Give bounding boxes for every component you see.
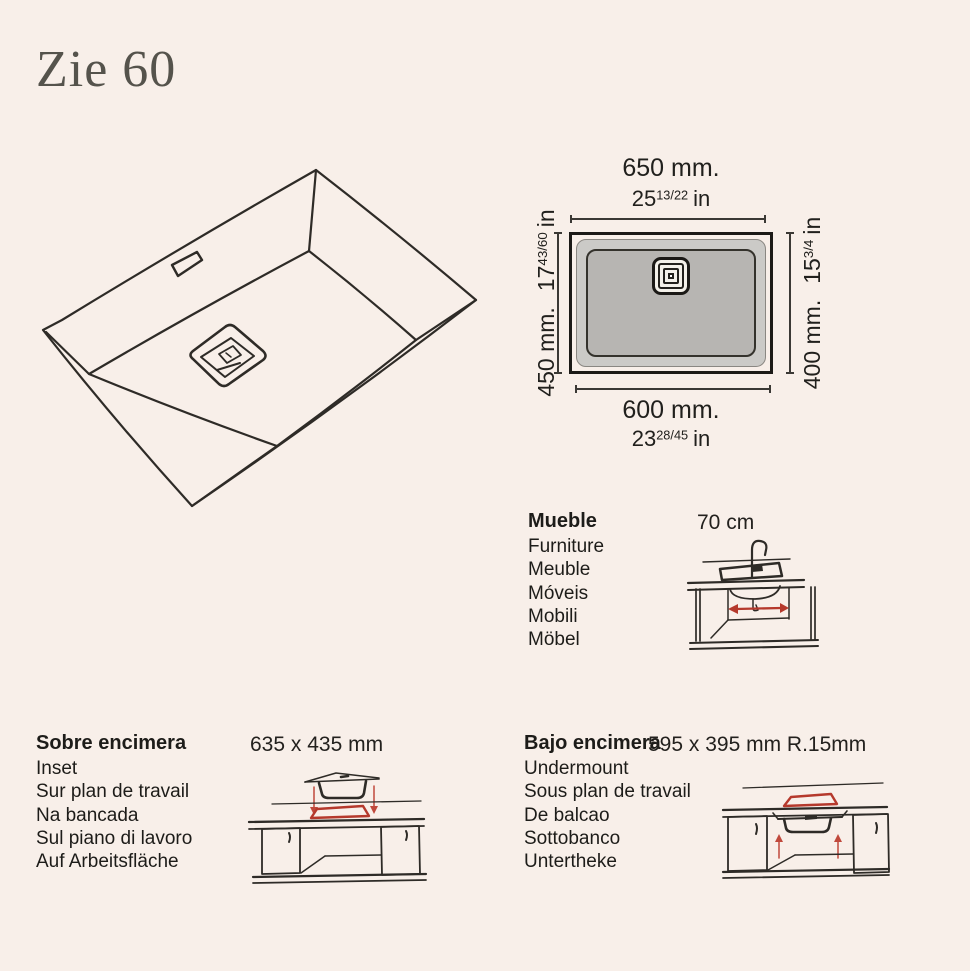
sink-wall-edge-top bbox=[309, 170, 316, 251]
undermount-installation-drawing bbox=[713, 766, 948, 891]
counter-top bbox=[249, 819, 424, 829]
inset-dimension: 635 x 435 mm bbox=[250, 733, 383, 757]
worktop-surface-line bbox=[272, 801, 421, 804]
undermount-label-it: Sottobanco bbox=[524, 827, 691, 850]
cutout-outline bbox=[784, 794, 837, 806]
dimension-bottom-inches: 2328/45in bbox=[569, 426, 773, 452]
undermount-label-en: Undermount bbox=[524, 757, 691, 780]
sink-rim bbox=[576, 239, 766, 367]
furniture-label-it: Mobili bbox=[528, 605, 604, 628]
dimension-top-inches: 2513/22in bbox=[569, 186, 773, 212]
sink-basin bbox=[586, 249, 756, 357]
furniture-labels: Mueble Furniture Meuble Móveis Mobili Mö… bbox=[528, 510, 604, 651]
undermount-label-pt: De balcao bbox=[524, 804, 691, 827]
spec-sheet-page: Zie 60 650 mm. 2513/22in 450 mm.1743/60i… bbox=[0, 0, 970, 971]
sink-outer-rim bbox=[43, 170, 476, 506]
furniture-label-en: Furniture bbox=[528, 535, 604, 558]
inset-label-fr: Sur plan de travail bbox=[36, 780, 192, 803]
inset-label-pt: Na bancada bbox=[36, 804, 192, 827]
dimension-line-top bbox=[570, 218, 766, 220]
inset-label-es: Sobre encimera bbox=[36, 732, 192, 755]
furniture-label-pt: Móveis bbox=[528, 582, 604, 605]
product-title: Zie 60 bbox=[36, 40, 176, 99]
width-arrow bbox=[728, 603, 789, 614]
sink-wall-edge-bottom bbox=[192, 446, 277, 506]
sink-top-view-outline bbox=[569, 232, 773, 374]
furniture-label-de: Möbel bbox=[528, 628, 604, 651]
dimension-top-mm: 650 mm. bbox=[569, 154, 773, 183]
furniture-label-es: Mueble bbox=[528, 510, 604, 533]
sink-basin-floor bbox=[89, 251, 416, 446]
cabinet-interior bbox=[768, 854, 853, 870]
inset-label-it: Sul piano di lavoro bbox=[36, 827, 192, 850]
cutout-outline bbox=[311, 806, 369, 818]
dimension-line-bottom bbox=[575, 388, 771, 390]
left-door bbox=[728, 816, 767, 871]
left-door bbox=[262, 828, 300, 874]
sink-wall-edge-right bbox=[416, 300, 476, 340]
overflow-slot bbox=[172, 252, 202, 276]
top-view-diagram: 650 mm. 2513/22in 450 mm.1743/60in 400 m… bbox=[530, 148, 840, 458]
right-door bbox=[853, 814, 889, 873]
wall-line bbox=[703, 559, 790, 562]
inset-label-en: Inset bbox=[36, 757, 192, 780]
right-door bbox=[381, 826, 420, 875]
undermount-label-fr: Sous plan de travail bbox=[524, 780, 691, 803]
undermount-label-de: Untertheke bbox=[524, 850, 691, 873]
cabinet-base bbox=[253, 874, 426, 883]
drain-top-view bbox=[652, 257, 690, 295]
cabinet-interior bbox=[711, 588, 789, 638]
dimension-line-right bbox=[789, 232, 791, 374]
counter-top bbox=[688, 580, 804, 590]
cabinet-interior bbox=[301, 855, 381, 873]
sink-3d-drawing bbox=[28, 158, 488, 518]
dimension-left-label: 450 mm.1743/60in bbox=[529, 188, 557, 418]
inset-labels: Sobre encimera Inset Sur plan de travail… bbox=[36, 732, 192, 873]
inset-label-de: Auf Arbeitsfläche bbox=[36, 850, 192, 873]
furniture-label-fr: Meuble bbox=[528, 558, 604, 581]
dimension-right-label: 400 mm.153/4in bbox=[795, 188, 823, 418]
drain-3d bbox=[191, 325, 266, 386]
sink-above-counter bbox=[305, 773, 379, 798]
inset-installation-drawing bbox=[243, 766, 458, 891]
dimension-line-left bbox=[557, 232, 559, 374]
cabinet-drawing bbox=[668, 528, 843, 663]
cabinet-legs bbox=[696, 587, 815, 641]
worktop-surface-line bbox=[743, 783, 883, 788]
cabinet-base bbox=[690, 640, 818, 649]
sink-wall-edge-left bbox=[46, 332, 89, 374]
undermount-dimension: 595 x 395 mm R.15mm bbox=[648, 733, 866, 757]
dimension-bottom-mm: 600 mm. bbox=[569, 396, 773, 425]
